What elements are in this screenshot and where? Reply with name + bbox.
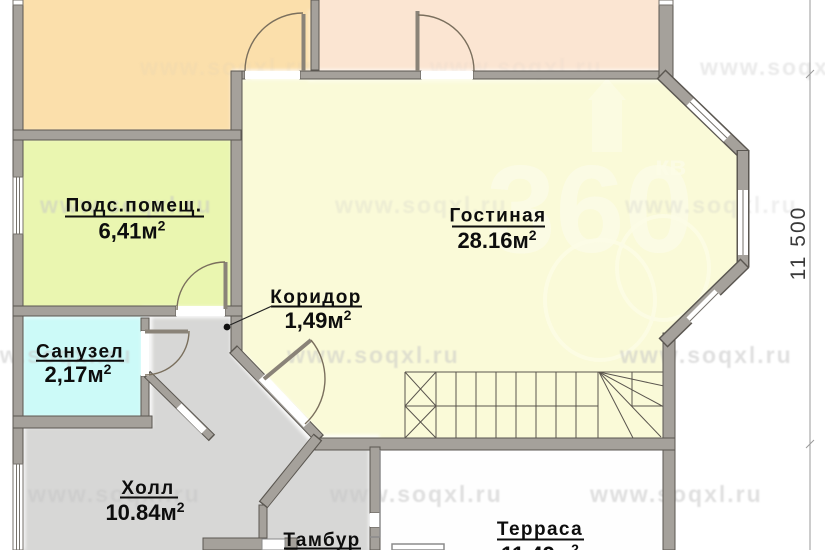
svg-text:www.soqxl.ru: www.soqxl.ru (589, 481, 763, 507)
svg-text:28.16м2: 28.16м2 (457, 227, 536, 253)
svg-text:Коридор: Коридор (270, 287, 362, 308)
svg-text:www.soqxl.ru: www.soqxl.ru (624, 192, 798, 218)
svg-text:Санузел: Санузел (36, 342, 124, 363)
svg-text:Тамбур: Тамбур (283, 530, 360, 550)
svg-text:11,49м2: 11,49м2 (501, 541, 579, 550)
svg-text:10.84м2: 10.84м2 (105, 499, 184, 525)
svg-text:кв: кв (655, 150, 686, 181)
svg-text:www.soqxl.ru: www.soqxl.ru (699, 54, 825, 80)
svg-text:Гостиная: Гостиная (449, 206, 546, 227)
svg-text:Терраса: Терраса (497, 519, 583, 540)
svg-text:6,41м2: 6,41м2 (99, 218, 166, 244)
svg-text:Холл: Холл (121, 478, 174, 499)
svg-text:www.soqxl.ru: www.soqxl.ru (329, 481, 503, 507)
svg-text:www.soqxl.ru: www.soqxl.ru (619, 342, 793, 368)
svg-text:11 500: 11 500 (787, 206, 810, 281)
svg-text:2,17м2: 2,17м2 (45, 361, 112, 387)
svg-text:Подс.помещ.: Подс.помещ. (66, 196, 203, 217)
svg-text:1,49м2: 1,49м2 (285, 307, 352, 333)
svg-text:www.soqxl.ru: www.soqxl.ru (286, 342, 460, 368)
